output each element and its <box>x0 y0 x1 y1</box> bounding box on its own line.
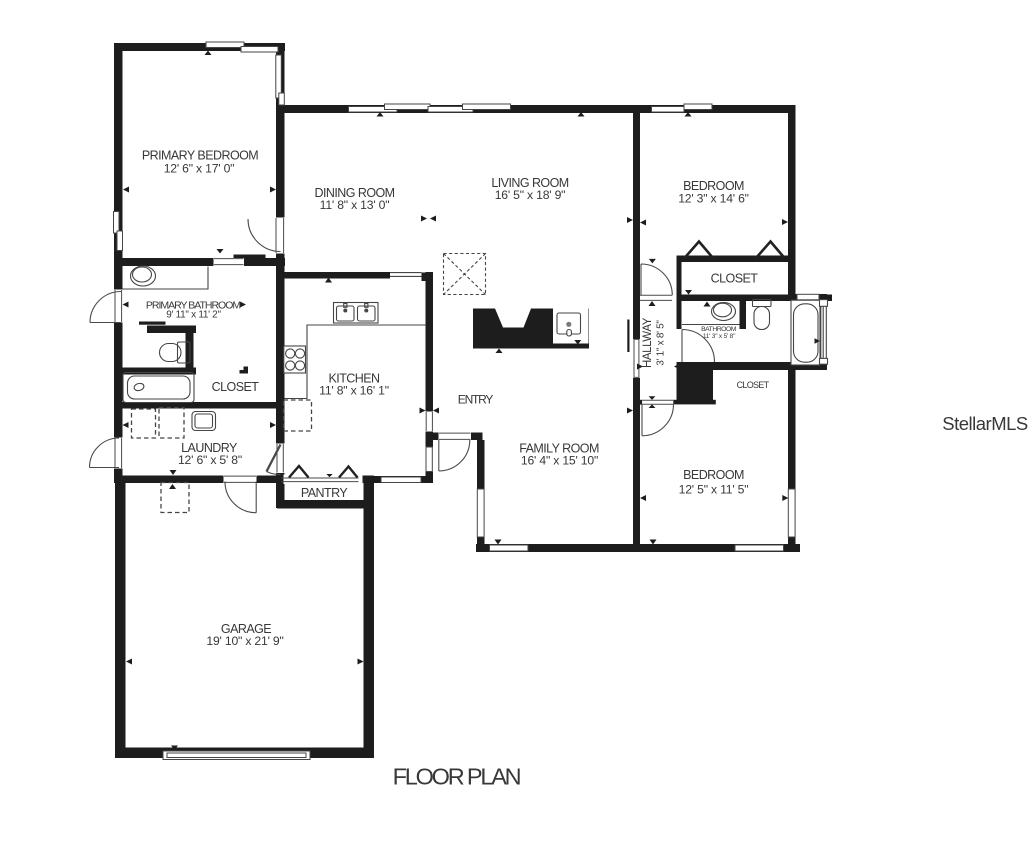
svg-text:ENTRY: ENTRY <box>458 392 494 406</box>
svg-text:HALLWAY: HALLWAY <box>642 317 654 368</box>
svg-text:FLOOR PLAN: FLOOR PLAN <box>393 764 521 790</box>
svg-text:19' 10" x 21' 9": 19' 10" x 21' 9" <box>206 634 283 648</box>
svg-text:9' 11" x 11' 2": 9' 11" x 11' 2" <box>166 310 221 321</box>
svg-text:12' 6" x 5' 8": 12' 6" x 5' 8" <box>178 453 242 467</box>
svg-text:16' 5" x 18' 9": 16' 5" x 18' 9" <box>495 188 566 202</box>
svg-text:12' 5" x 11' 5": 12' 5" x 11' 5" <box>679 483 749 497</box>
svg-text:PRIMARY BEDROOM: PRIMARY BEDROOM <box>142 148 258 162</box>
svg-text:CLOSET: CLOSET <box>737 380 770 390</box>
svg-text:BATHROOM: BATHROOM <box>701 326 737 333</box>
svg-text:12' 6" x 17' 0": 12' 6" x 17' 0" <box>164 161 235 175</box>
svg-text:BEDROOM: BEDROOM <box>683 468 744 482</box>
svg-text:11' 8" x 13' 0": 11' 8" x 13' 0" <box>320 198 390 212</box>
svg-text:11' 8" x 16' 1": 11' 8" x 16' 1" <box>319 384 389 398</box>
svg-text:PANTRY: PANTRY <box>301 486 348 500</box>
svg-text:3' 1" x 8' 5": 3' 1" x 8' 5" <box>656 320 667 366</box>
svg-text:11' 3" x 5' 8": 11' 3" x 5' 8" <box>703 333 736 340</box>
svg-text:CLOSET: CLOSET <box>711 271 759 285</box>
svg-text:16' 4" x 15' 10": 16' 4" x 15' 10" <box>521 454 598 468</box>
svg-text:StellarMLS: StellarMLS <box>942 413 1028 434</box>
svg-text:12' 3" x 14' 6": 12' 3" x 14' 6" <box>678 192 749 206</box>
svg-text:CLOSET: CLOSET <box>212 380 260 394</box>
